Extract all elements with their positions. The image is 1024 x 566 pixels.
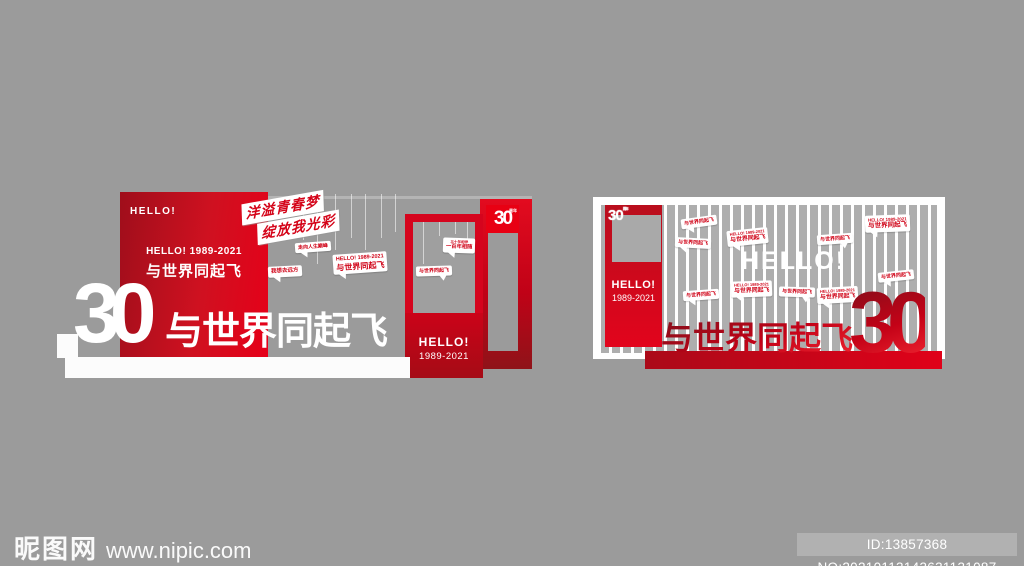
big-number-30: 30: [73, 276, 146, 352]
door-base-block: HELLO! 1989-2021: [405, 313, 483, 378]
left-exhibit-wall: HELLO! HELLO! 1989-2021 与世界同起飞 洋溢青春梦 绽放我…: [65, 192, 535, 392]
bubble-line2: 一百年相随: [446, 244, 473, 251]
hanging-string: [351, 194, 352, 238]
hanging-string: [455, 222, 456, 234]
site-logo-text: 昵图网: [14, 529, 98, 566]
watermark-id-badge: ID:13857368 NO:20210113143631131087: [797, 533, 1017, 556]
big-number-30-red: 30: [849, 287, 925, 360]
anniversary-badge: 30 周年: [486, 205, 519, 233]
hanging-string: [423, 222, 424, 264]
poster-canvas: HELLO! HELLO! 1989-2021 与世界同起飞 洋溢青春梦 绽放我…: [0, 0, 1024, 566]
hanging-string: [439, 222, 440, 236]
big-slogan-text-red: 与世界同起飞: [661, 321, 853, 356]
speech-bubble: 三十年相伴一百年相随: [443, 237, 476, 253]
speech-bubble: 与世界同起飞: [416, 265, 452, 276]
hanging-string: [395, 194, 396, 232]
speech-bubble: 与世界同起飞: [675, 237, 711, 249]
bubble-line2: 与世界同起飞: [868, 222, 907, 231]
speech-bubble: 与世界同起飞: [683, 289, 720, 301]
right-exhibit-wall: 30周年 HELLO! 1989-2021 HELLO! 与世界同起飞HELLO…: [593, 197, 945, 377]
speech-bubble: 与世界同起飞: [680, 215, 717, 230]
door-opening: 三十年相伴一百年相随与世界同起飞: [413, 222, 475, 313]
door-frame: 三十年相伴一百年相随与世界同起飞 HELLO! 1989-2021: [405, 214, 483, 378]
platform-base: [65, 357, 410, 378]
bubble-line2: 与世界同起飞: [734, 287, 769, 295]
door-years-label: 1989-2021: [405, 351, 483, 362]
badge-label: 周年: [509, 208, 517, 214]
speech-bubble: 与世界同起飞: [817, 233, 854, 245]
big-slogan-text: 与世界同起飞: [165, 312, 387, 354]
site-url-text: www.nipic.com: [106, 538, 251, 564]
door-hello-label: HELLO!: [405, 335, 483, 349]
speech-bubble: 走向人生巅峰: [295, 241, 332, 253]
speech-bubble: HELLO! 1989-2021与世界同起飞: [726, 227, 769, 247]
speech-bubble: 与世界同起飞: [779, 286, 815, 297]
hanging-string: [365, 194, 366, 250]
speech-bubble: HELLO! 1989-2021与世界同起飞: [865, 214, 911, 233]
watermark-site: 昵图网 www.nipic.com: [14, 529, 252, 566]
speech-bubble: 我想去远方: [268, 265, 302, 277]
hanging-string: [381, 194, 382, 238]
speech-bubble: HELLO! 1989-2021与世界同起飞: [731, 280, 773, 297]
speech-bubble: HELLO! 1989-2021与世界同起飞: [332, 251, 388, 275]
